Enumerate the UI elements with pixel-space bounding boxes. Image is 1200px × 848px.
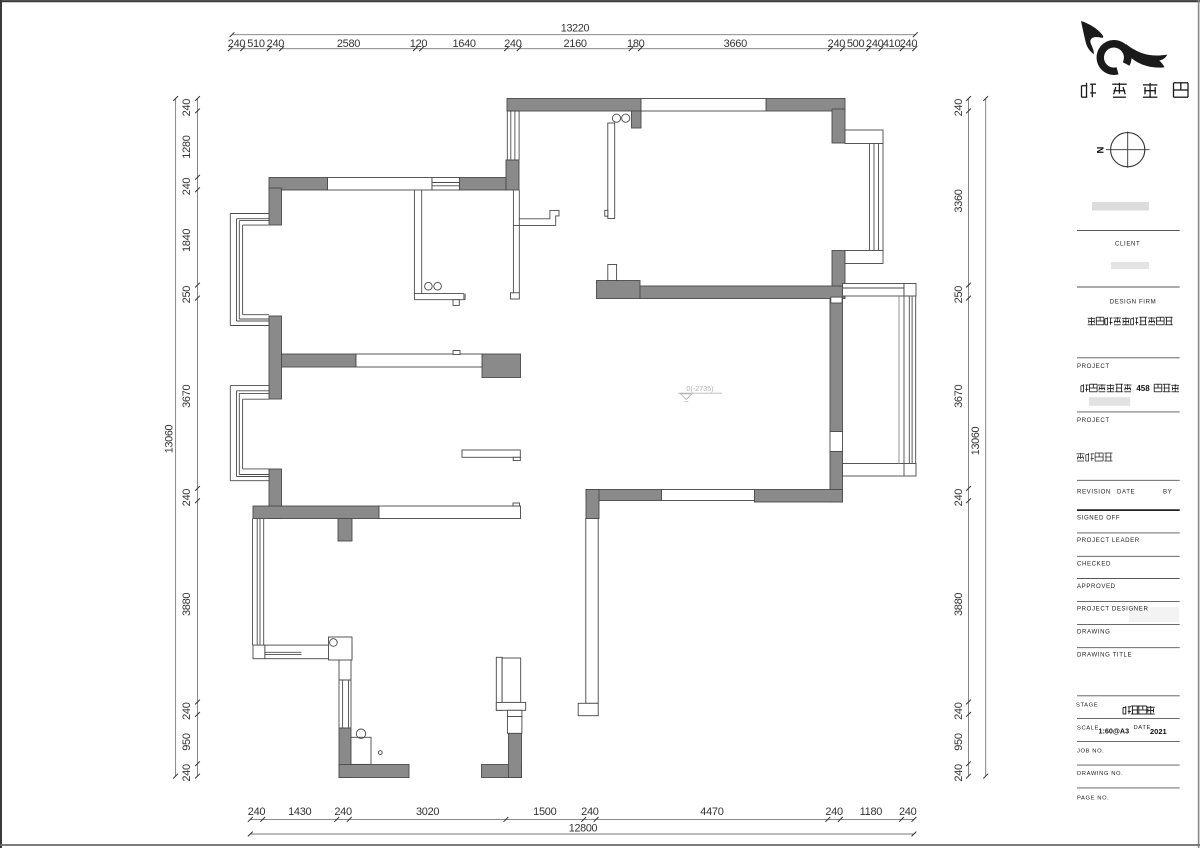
svg-text:SIGNED OFF: SIGNED OFF	[1077, 515, 1120, 522]
svg-text:PROJECT: PROJECT	[1077, 363, 1110, 370]
svg-text:BY: BY	[1163, 489, 1172, 496]
svg-text:500: 500	[847, 38, 865, 50]
svg-text:240: 240	[334, 806, 352, 818]
svg-text:240: 240	[581, 806, 599, 818]
svg-text:DRAWING: DRAWING	[1077, 629, 1110, 636]
svg-text:240: 240	[181, 702, 193, 720]
svg-text:13060: 13060	[164, 424, 176, 453]
svg-text:2021: 2021	[1150, 727, 1167, 736]
svg-text:REVISION: REVISION	[1077, 489, 1111, 496]
svg-text:458: 458	[1136, 384, 1150, 393]
svg-text:3020: 3020	[416, 806, 439, 818]
svg-text:PAGE NO.: PAGE NO.	[1077, 796, 1109, 802]
svg-text:APPROVED: APPROVED	[1077, 583, 1116, 590]
svg-text:240: 240	[248, 806, 266, 818]
svg-text:12800: 12800	[569, 823, 598, 835]
svg-text:240: 240	[504, 38, 522, 50]
svg-text:DESIGN FIRM: DESIGN FIRM	[1110, 299, 1157, 306]
svg-text:1180: 1180	[860, 806, 883, 818]
svg-text:CHECKED: CHECKED	[1077, 561, 1111, 568]
svg-text:950: 950	[181, 733, 193, 751]
svg-text:2580: 2580	[337, 38, 360, 50]
svg-text:2160: 2160	[563, 38, 586, 50]
svg-text:DATE: DATE	[1134, 725, 1151, 731]
svg-text:3670: 3670	[181, 384, 193, 407]
svg-text:PROJECT: PROJECT	[1077, 417, 1110, 424]
svg-text:240: 240	[181, 178, 193, 196]
svg-text:240: 240	[899, 806, 917, 818]
svg-text:1840: 1840	[181, 229, 193, 252]
svg-text:240: 240	[953, 489, 965, 507]
svg-text:250: 250	[181, 286, 193, 304]
svg-text:240: 240	[228, 38, 246, 50]
svg-text:PROJECT DESIGNER: PROJECT DESIGNER	[1077, 606, 1148, 613]
svg-text:3360: 3360	[953, 189, 965, 212]
svg-text:240: 240	[866, 38, 884, 50]
svg-text:DATE: DATE	[1117, 489, 1135, 496]
svg-text:DRAWING NO.: DRAWING NO.	[1077, 771, 1123, 777]
svg-text:1430: 1430	[288, 806, 311, 818]
svg-text:120: 120	[410, 38, 428, 50]
svg-text:CLIENT: CLIENT	[1115, 241, 1140, 248]
svg-text:240: 240	[828, 38, 846, 50]
svg-text:510: 510	[247, 38, 265, 50]
svg-text:240: 240	[181, 489, 193, 507]
svg-text:250: 250	[953, 286, 965, 304]
svg-text:950: 950	[953, 733, 965, 751]
svg-text:240: 240	[181, 99, 193, 117]
svg-text:1280: 1280	[181, 135, 193, 158]
svg-text:1500: 1500	[533, 806, 556, 818]
svg-text:3880: 3880	[181, 593, 193, 616]
svg-text:240: 240	[953, 99, 965, 117]
svg-text:N: N	[1096, 146, 1107, 153]
svg-text:240: 240	[953, 702, 965, 720]
svg-text:13220: 13220	[561, 23, 590, 35]
svg-text:240: 240	[953, 764, 965, 782]
svg-text:4470: 4470	[700, 806, 723, 818]
svg-text:3670: 3670	[953, 384, 965, 407]
svg-text:3880: 3880	[953, 593, 965, 616]
svg-text:410: 410	[883, 38, 901, 50]
svg-text:1:60@A3: 1:60@A3	[1099, 727, 1130, 736]
svg-text:STAGE: STAGE	[1076, 703, 1098, 709]
svg-text:3660: 3660	[724, 38, 747, 50]
svg-text:DRAWING TITLE: DRAWING TITLE	[1077, 652, 1132, 659]
svg-text:13060: 13060	[970, 426, 982, 455]
svg-text:240: 240	[900, 38, 918, 50]
svg-text:240: 240	[825, 806, 843, 818]
svg-text:180: 180	[627, 38, 645, 50]
svg-text:1640: 1640	[452, 38, 475, 50]
svg-text:240: 240	[267, 38, 285, 50]
svg-text:240: 240	[181, 764, 193, 782]
svg-text:PROJECT LEADER: PROJECT LEADER	[1077, 537, 1140, 544]
svg-text:SCALE: SCALE	[1077, 726, 1099, 732]
svg-text:JOB NO.: JOB NO.	[1077, 749, 1104, 755]
svg-text:0(-2735): 0(-2735)	[686, 384, 713, 393]
